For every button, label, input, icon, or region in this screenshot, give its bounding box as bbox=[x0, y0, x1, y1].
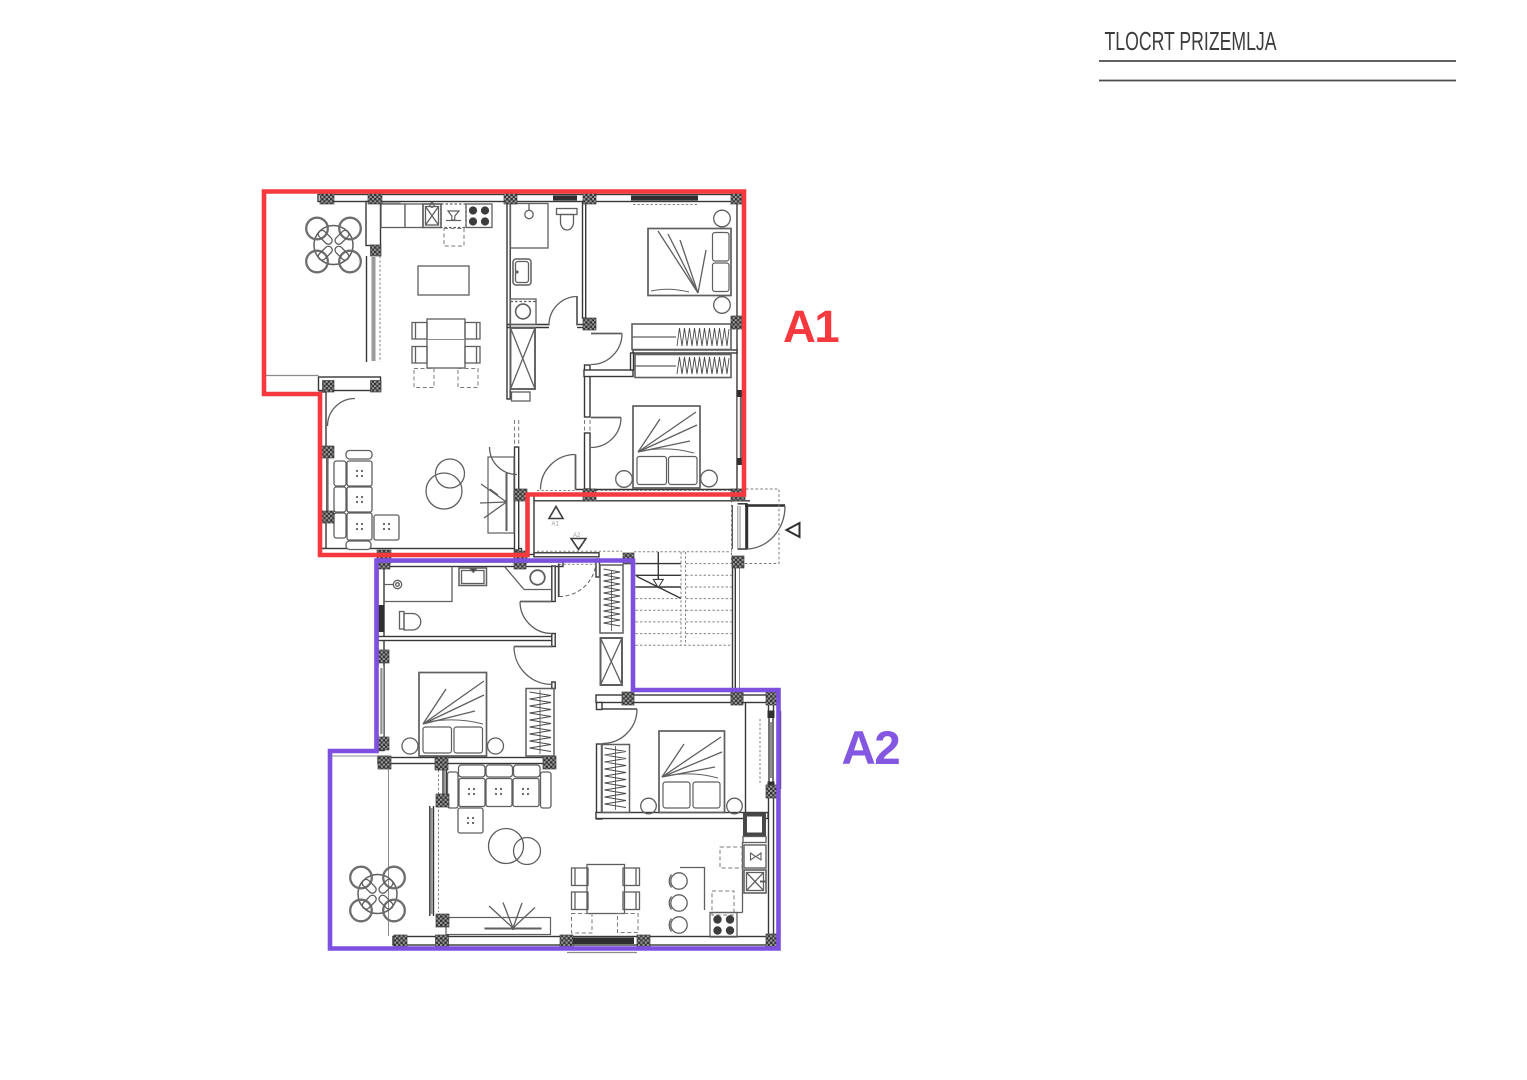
svg-text:TLOCRT PRIZEMLJA: TLOCRT PRIZEMLJA bbox=[1105, 26, 1277, 56]
svg-text:A1: A1 bbox=[783, 301, 839, 352]
svg-text:A2: A2 bbox=[842, 722, 900, 775]
svg-text:A1: A1 bbox=[552, 522, 560, 528]
